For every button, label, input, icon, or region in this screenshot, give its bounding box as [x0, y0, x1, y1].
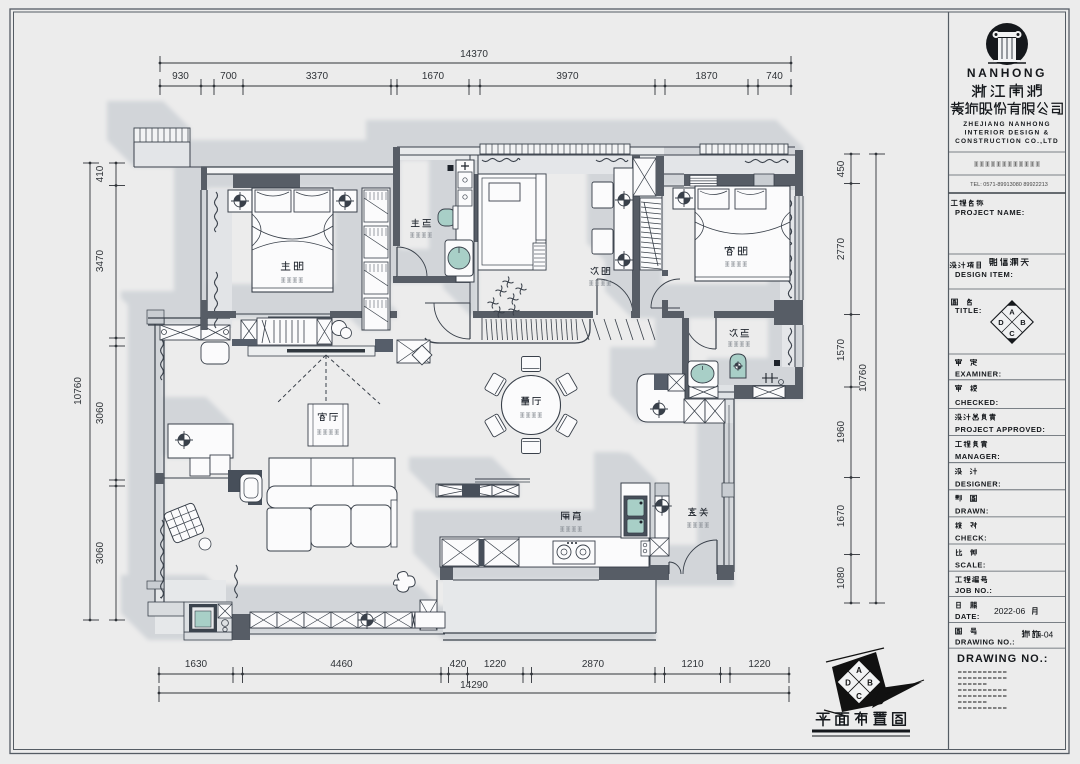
- svg-text:DESIGN ITEM:: DESIGN ITEM:: [955, 270, 1013, 279]
- svg-text:1960: 1960: [836, 420, 847, 443]
- svg-text:DRAWING NO.:: DRAWING NO.:: [955, 638, 1015, 647]
- svg-text:DRAWING NO.:: DRAWING NO.:: [957, 653, 1048, 665]
- svg-text:1670: 1670: [836, 504, 847, 527]
- svg-text:SCALE:: SCALE:: [955, 561, 986, 570]
- svg-text:420: 420: [450, 659, 467, 670]
- svg-text:930: 930: [172, 71, 189, 82]
- svg-text:1220: 1220: [748, 659, 771, 670]
- svg-text:INTERIOR DESIGN &: INTERIOR DESIGN &: [965, 130, 1050, 137]
- svg-text:D: D: [845, 679, 851, 688]
- svg-text:B: B: [1020, 318, 1026, 327]
- svg-text:CONSTRUCTION CO.,LTD: CONSTRUCTION CO.,LTD: [955, 138, 1059, 145]
- svg-text:NANHONG: NANHONG: [967, 66, 1047, 80]
- svg-text:TITLE:: TITLE:: [955, 306, 982, 315]
- svg-text:C: C: [1009, 329, 1015, 338]
- svg-text:1210: 1210: [681, 659, 704, 670]
- svg-text:ZHEJIANG NANHONG: ZHEJIANG NANHONG: [963, 121, 1050, 128]
- svg-text:1670: 1670: [422, 71, 445, 82]
- svg-text:A: A: [856, 666, 862, 675]
- svg-text:450: 450: [836, 160, 847, 177]
- svg-text:EXAMINER:: EXAMINER:: [955, 369, 1002, 378]
- svg-text:1630: 1630: [185, 659, 208, 670]
- svg-text:2770: 2770: [836, 237, 847, 260]
- svg-text:3370: 3370: [306, 71, 329, 82]
- svg-text:1080: 1080: [836, 566, 847, 589]
- svg-text:4460: 4460: [330, 659, 353, 670]
- svg-text:2870: 2870: [582, 659, 605, 670]
- svg-text:3060: 3060: [95, 541, 106, 564]
- svg-text:D: D: [998, 318, 1004, 327]
- svg-text:DATE:: DATE:: [955, 612, 980, 621]
- svg-text:PROJECT NAME:: PROJECT NAME:: [955, 208, 1025, 217]
- svg-text:410: 410: [95, 165, 106, 182]
- svg-text:1870: 1870: [695, 71, 718, 82]
- svg-text:PROJECT APPROVED:: PROJECT APPROVED:: [955, 425, 1045, 434]
- svg-text:10760: 10760: [73, 377, 84, 405]
- svg-text:3970: 3970: [556, 71, 579, 82]
- svg-text:MANAGER:: MANAGER:: [955, 452, 1000, 461]
- svg-text:JOB NO.:: JOB NO.:: [955, 586, 992, 595]
- svg-text:3470: 3470: [95, 249, 106, 272]
- svg-text:10760: 10760: [858, 364, 869, 392]
- svg-text:1570: 1570: [836, 338, 847, 361]
- svg-text:14290: 14290: [460, 680, 488, 691]
- svg-text:DRAWN:: DRAWN:: [955, 506, 989, 515]
- svg-text:B: B: [867, 679, 873, 688]
- svg-text:A: A: [1009, 308, 1015, 317]
- svg-text:2022-06: 2022-06: [994, 606, 1025, 616]
- svg-text:700: 700: [220, 71, 237, 82]
- svg-text::: :: [951, 203, 952, 207]
- svg-text:-04: -04: [1041, 630, 1054, 640]
- svg-text:740: 740: [766, 71, 783, 82]
- svg-text:1220: 1220: [484, 659, 507, 670]
- svg-text:CHECK:: CHECK:: [955, 534, 987, 543]
- svg-text:CHECKED:: CHECKED:: [955, 398, 999, 407]
- svg-text:3060: 3060: [95, 401, 106, 424]
- svg-text:14370: 14370: [460, 49, 488, 60]
- svg-text:C: C: [856, 692, 862, 701]
- svg-text:TEL: 0571-89913080 89922213: TEL: 0571-89913080 89922213: [970, 182, 1048, 188]
- svg-text:DESIGNER:: DESIGNER:: [955, 479, 1001, 488]
